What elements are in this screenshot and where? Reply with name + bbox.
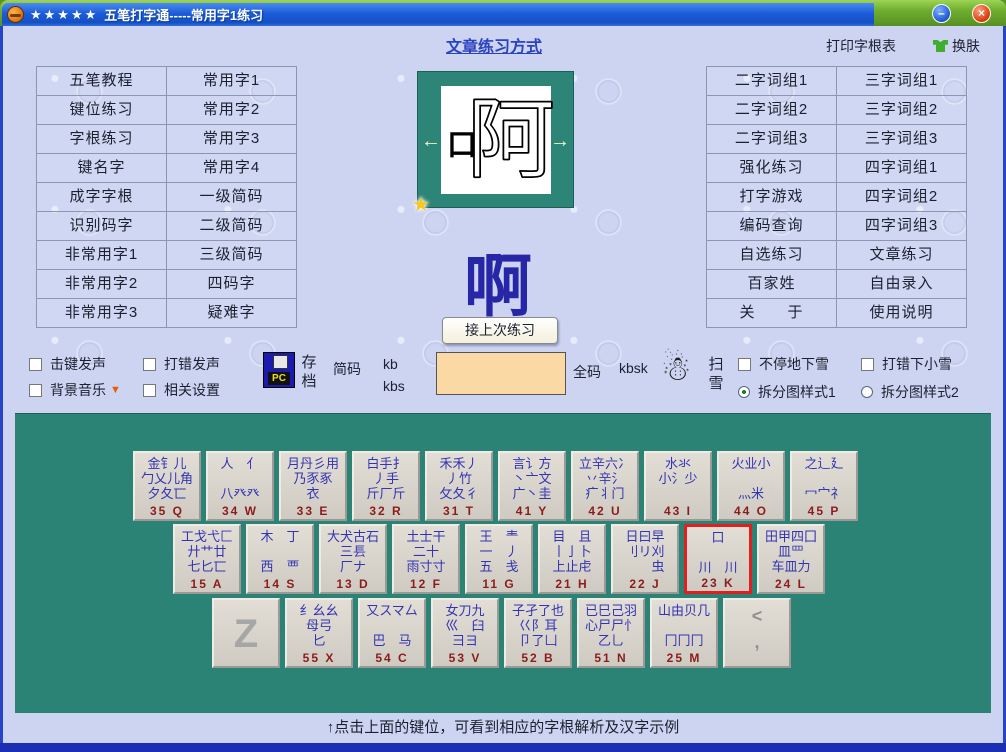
menu-left2-8[interactable]: 疑难字	[166, 298, 297, 328]
left-menu-column-1: 五笔教程键位练习字根练习键名字成字字根识别码字非常用字1非常用字2非常用字3	[36, 67, 167, 328]
menu-right1-7[interactable]: 百家姓	[706, 269, 837, 299]
wubi-typing-app: ★★★★★ 五笔打字通-----常用字1练习 – × 文章练习方式 打印字根表 …	[0, 0, 1006, 752]
quanma-label: 全码	[573, 362, 601, 382]
key-B[interactable]: 子孑了也巜阝耳卩了凵52 B	[504, 598, 572, 668]
key-N[interactable]: 已巳己羽心尸尸忄乙乚51 N	[577, 598, 645, 668]
key-Y[interactable]: 言讠方丶亠文广丶圭41 Y	[498, 451, 566, 521]
left-menu-column-2: 常用字1常用字2常用字3常用字4一级简码二级简码三级简码四码字疑难字	[166, 67, 297, 328]
menu-left2-1[interactable]: 常用字2	[166, 95, 297, 125]
menu-left2-3[interactable]: 常用字4	[166, 153, 297, 183]
menu-right1-8[interactable]: 关 于	[706, 298, 837, 328]
checkbox-bg-music[interactable]: 背景音乐 ▼	[29, 380, 121, 400]
menu-left1-4[interactable]: 成字字根	[36, 182, 167, 212]
key-E[interactable]: 月丹彡用乃豕豖衣33 E	[279, 451, 347, 521]
menu-right2-1[interactable]: 三字词组2	[836, 95, 967, 125]
checkbox-icon	[143, 358, 156, 371]
menu-right1-1[interactable]: 二字词组2	[706, 95, 837, 125]
key-U[interactable]: 立辛六冫丷辛氵疒丬门42 U	[571, 451, 639, 521]
star-icon: ★	[412, 192, 430, 217]
menu-left2-7[interactable]: 四码字	[166, 269, 297, 299]
checkbox-icon	[29, 358, 42, 371]
menu-right2-6[interactable]: 文章练习	[836, 240, 967, 270]
radio-split-style-1[interactable]: 拆分图样式1	[738, 382, 836, 402]
key-C[interactable]: 又スマ厶 巴 马54 C	[358, 598, 426, 668]
menu-left2-5[interactable]: 二级简码	[166, 211, 297, 241]
shirt-icon	[933, 40, 948, 52]
menu-left2-2[interactable]: 常用字3	[166, 124, 297, 154]
save-floppy-icon[interactable]	[263, 352, 295, 388]
menu-left2-4[interactable]: 一级简码	[166, 182, 297, 212]
menu-right2-3[interactable]: 四字词组1	[836, 153, 967, 183]
key-F[interactable]: 土士干二十雨寸寸12 F	[392, 524, 460, 594]
title-stars: ★★★★★	[30, 7, 98, 23]
key-W[interactable]: 人 亻 八癶癶34 W	[206, 451, 274, 521]
menu-left1-3[interactable]: 键名字	[36, 153, 167, 183]
jianma-code-2: kbs	[383, 378, 405, 394]
checkbox-icon	[29, 384, 42, 397]
key-L[interactable]: 田甲四囗皿罒车皿力24 L	[757, 524, 825, 594]
right-menu-column-1: 二字词组1二字词组2二字词组3强化练习打字游戏编码查询自选练习百家姓关 于	[706, 67, 837, 328]
key-Z[interactable]: Z	[212, 598, 280, 668]
checkbox-keep-snowing[interactable]: 不停地下雪	[738, 354, 829, 374]
menu-right2-2[interactable]: 三字词组3	[836, 124, 967, 154]
key-X[interactable]: 纟幺幺母弓匕55 X	[285, 598, 353, 668]
save-label: 存档	[301, 353, 317, 391]
menu-right2-4[interactable]: 四字词组2	[836, 182, 967, 212]
key-comma[interactable]: <,	[723, 598, 791, 668]
keyboard-row-1: 金钅儿勹乂儿角夕夂匸35 Q人 亻 八癶癶34 W月丹彡用乃豕豖衣33 E白手扌…	[133, 451, 863, 521]
menu-left1-8[interactable]: 非常用字3	[36, 298, 167, 328]
menu-left1-0[interactable]: 五笔教程	[36, 66, 167, 96]
change-skin-label: 换肤	[952, 36, 980, 56]
radio-split-style-2[interactable]: 拆分图样式2	[861, 382, 959, 402]
checkbox-icon	[738, 358, 751, 371]
article-practice-link[interactable]: 文章练习方式	[446, 33, 542, 57]
snowman-icon: ☃	[661, 348, 691, 390]
key-R[interactable]: 白手扌丿手斤厂斤32 R	[352, 451, 420, 521]
menu-left1-2[interactable]: 字根练习	[36, 124, 167, 154]
key-A[interactable]: 工戈弋匚廾艹廿七匕匸15 A	[173, 524, 241, 594]
checkbox-error-snow[interactable]: 打错下小雪	[861, 354, 952, 374]
title-bar: ★★★★★ 五笔打字通-----常用字1练习 – ×	[0, 0, 1006, 26]
menu-left2-0[interactable]: 常用字1	[166, 66, 297, 96]
menu-right1-6[interactable]: 自选练习	[706, 240, 837, 270]
key-S[interactable]: 木 丁 西 覀14 S	[246, 524, 314, 594]
checkbox-error-sound[interactable]: 打错发声	[143, 354, 220, 374]
menu-right1-4[interactable]: 打字游戏	[706, 182, 837, 212]
key-D[interactable]: 大犬古石三镸厂ナ13 D	[319, 524, 387, 594]
checkbox-settings[interactable]: 相关设置	[143, 380, 220, 400]
keyboard-row-3: Z纟幺幺母弓匕55 X又スマ厶 巴 马54 C女刀九巛 臼彐ヨ53 V子孑了也巜…	[212, 598, 796, 668]
checkbox-key-sound[interactable]: 击键发声	[29, 354, 106, 374]
key-J[interactable]: 日曰早刂リ刈 虫22 J	[611, 524, 679, 594]
menu-right1-5[interactable]: 编码查询	[706, 211, 837, 241]
radio-icon-selected	[738, 386, 750, 398]
menu-left1-1[interactable]: 键位练习	[36, 95, 167, 125]
quanma-code: kbsk	[619, 360, 648, 376]
title-bar-blue: ★★★★★ 五笔打字通-----常用字1练习	[2, 3, 874, 26]
main-content: 文章练习方式 打印字根表 换肤 五笔教程键位练习字根练习键名字成字字根识别码字非…	[3, 26, 1003, 743]
menu-right2-8[interactable]: 使用说明	[836, 298, 967, 328]
key-Q[interactable]: 金钅儿勹乂儿角夕夂匸35 Q	[133, 451, 201, 521]
print-radical-table-button[interactable]: 打印字根表	[826, 36, 896, 56]
key-K[interactable]: 口 川 川23 K	[684, 524, 752, 594]
menu-left2-6[interactable]: 三级简码	[166, 240, 297, 270]
wubi-keyboard-panel: 金钅儿勹乂儿角夕夂匸35 Q人 亻 八癶癶34 W月丹彡用乃豕豖衣33 E白手扌…	[15, 413, 991, 713]
right-menu-column-2: 三字词组1三字词组2三字词组3四字词组1四字词组2四字词组3文章练习自由录入使用…	[836, 67, 967, 328]
key-I[interactable]: 水氺小氵少 43 I	[644, 451, 712, 521]
radio-icon	[861, 386, 873, 398]
typing-input[interactable]	[436, 352, 566, 395]
key-P[interactable]: 之辶廴 冖宀礻45 P	[790, 451, 858, 521]
key-M[interactable]: 山由贝几 冂冂冂25 M	[650, 598, 718, 668]
jianma-code-1: kb	[383, 356, 398, 372]
close-button[interactable]: ×	[972, 4, 991, 23]
menu-right1-2[interactable]: 二字词组3	[706, 124, 837, 154]
checkbox-icon	[861, 358, 874, 371]
window-title: 五笔打字通-----常用字1练习	[104, 5, 263, 24]
window-border-bottom	[0, 743, 1006, 752]
key-V[interactable]: 女刀九巛 臼彐ヨ53 V	[431, 598, 499, 668]
menu-right1-0[interactable]: 二字词组1	[706, 66, 837, 96]
key-G[interactable]: 王 龶一 丿五 戋11 G	[465, 524, 533, 594]
current-character: 啊	[423, 231, 573, 330]
key-H[interactable]: 目 且丨亅卜上止虍21 H	[538, 524, 606, 594]
key-O[interactable]: 火业小 灬米44 O	[717, 451, 785, 521]
character-right-outline: 阿	[467, 88, 555, 192]
previous-char-arrow[interactable]: ←	[421, 130, 441, 153]
jianma-label: 简码	[333, 359, 361, 379]
change-skin-button[interactable]: 换肤	[933, 36, 980, 56]
menu-right2-7[interactable]: 自由录入	[836, 269, 967, 299]
checkbox-icon	[143, 384, 156, 397]
menu-right2-5[interactable]: 四字词组3	[836, 211, 967, 241]
menu-left1-5[interactable]: 识别码字	[36, 211, 167, 241]
sweep-snow-label[interactable]: 扫雪	[708, 355, 724, 393]
next-char-arrow[interactable]: →	[550, 130, 570, 153]
resume-practice-button[interactable]: 接上次练习	[442, 317, 558, 344]
keyboard-row-2: 工戈弋匚廾艹廿七匕匸15 A木 丁 西 覀14 S大犬古石三镸厂ナ13 D土士干…	[173, 524, 830, 594]
character-display-frame: 口 阿 ← → ★	[417, 71, 574, 208]
key-T[interactable]: 禾禾丿丿竹攵夂彳31 T	[425, 451, 493, 521]
dropdown-triangle-icon[interactable]: ▼	[110, 384, 121, 396]
menu-right2-0[interactable]: 三字词组1	[836, 66, 967, 96]
app-icon	[7, 6, 24, 23]
minimize-button[interactable]: –	[932, 4, 951, 23]
menu-left1-7[interactable]: 非常用字2	[36, 269, 167, 299]
character-splitting-image: 口 阿	[441, 86, 551, 194]
keyboard-hint: ↑点击上面的键位，可看到相应的字根解析及汉字示例	[3, 713, 1003, 743]
menu-left1-6[interactable]: 非常用字1	[36, 240, 167, 270]
menu-right1-3[interactable]: 强化练习	[706, 153, 837, 183]
